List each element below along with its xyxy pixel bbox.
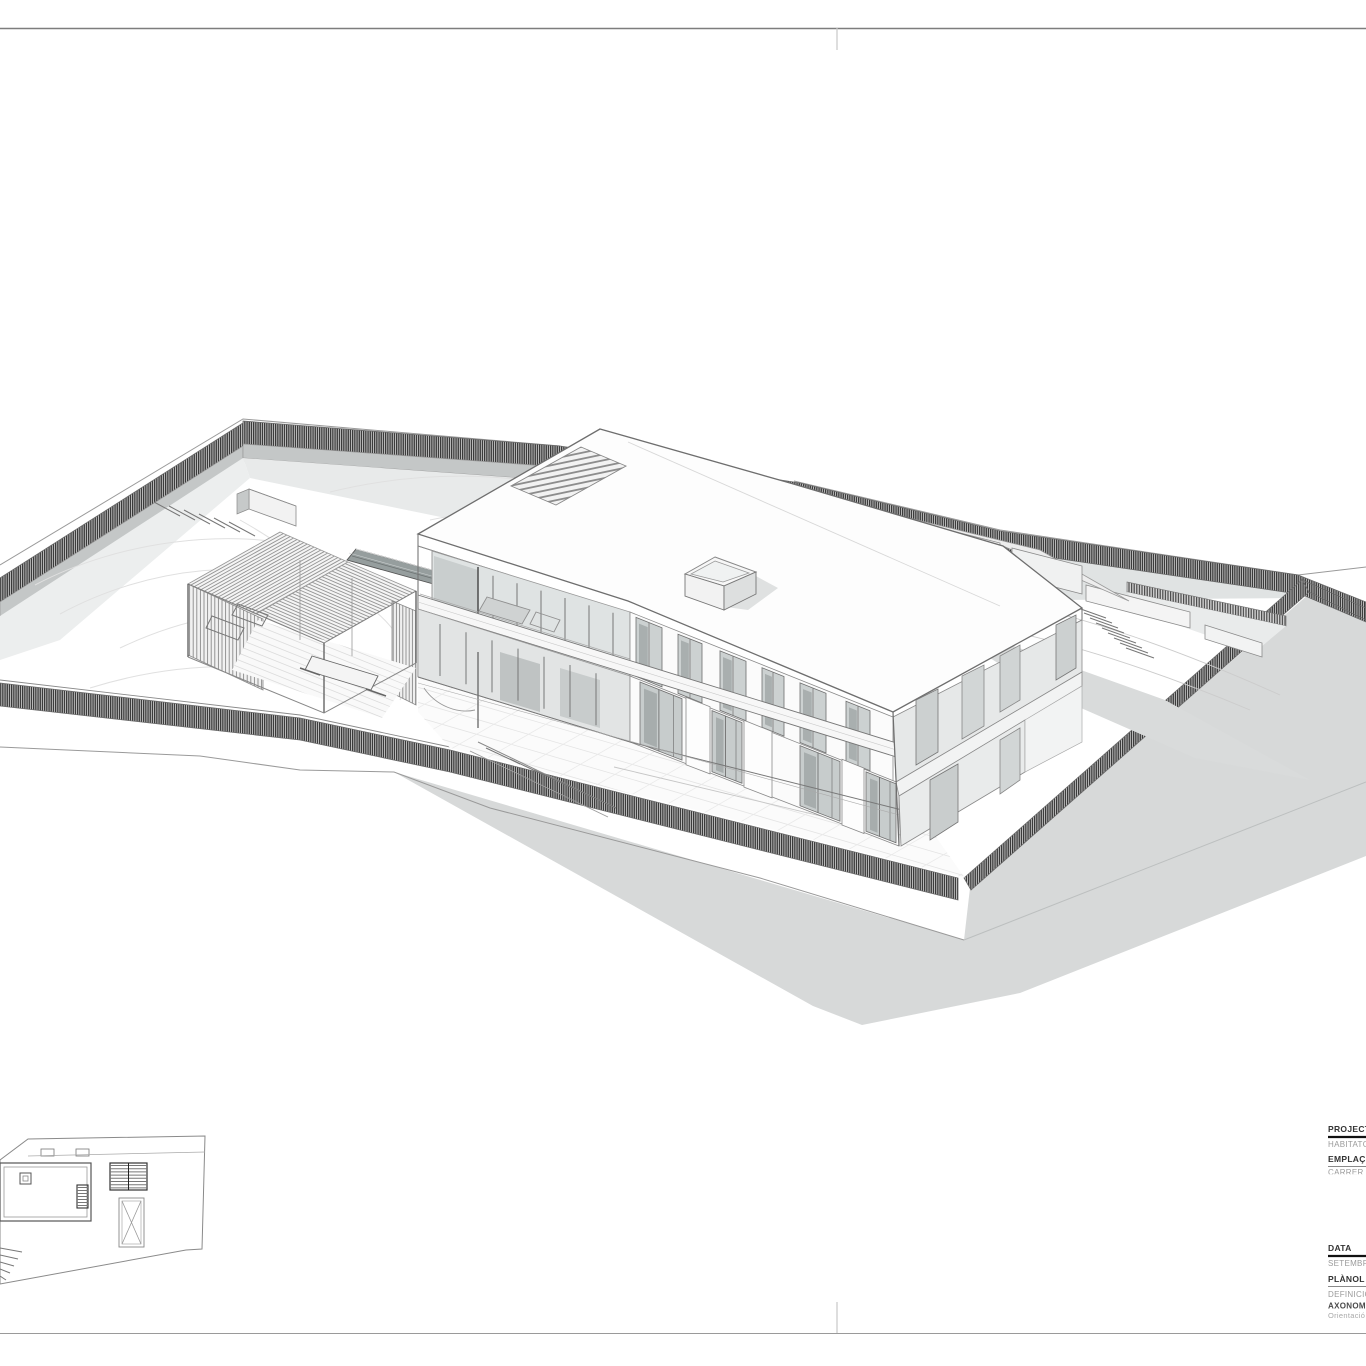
svg-text:EMPLAÇAMENT: EMPLAÇAMENT	[1328, 1154, 1366, 1164]
svg-text:PROJECTE: PROJECTE	[1328, 1124, 1366, 1134]
svg-text:Orientació sud-oest: Orientació sud-oest	[1328, 1311, 1366, 1320]
svg-text:PLÀNOL: PLÀNOL	[1328, 1274, 1365, 1284]
svg-text:AXONOMETRIA: AXONOMETRIA	[1328, 1302, 1366, 1311]
svg-text:HABITATGE UNIFAMILIAR: HABITATGE UNIFAMILIAR	[1328, 1140, 1366, 1149]
svg-text:SETEMBRE 2021: SETEMBRE 2021	[1328, 1259, 1366, 1268]
svg-text:DEFINICIÓ GENERAL: DEFINICIÓ GENERAL	[1328, 1290, 1366, 1299]
svg-text:DATA: DATA	[1328, 1243, 1352, 1253]
